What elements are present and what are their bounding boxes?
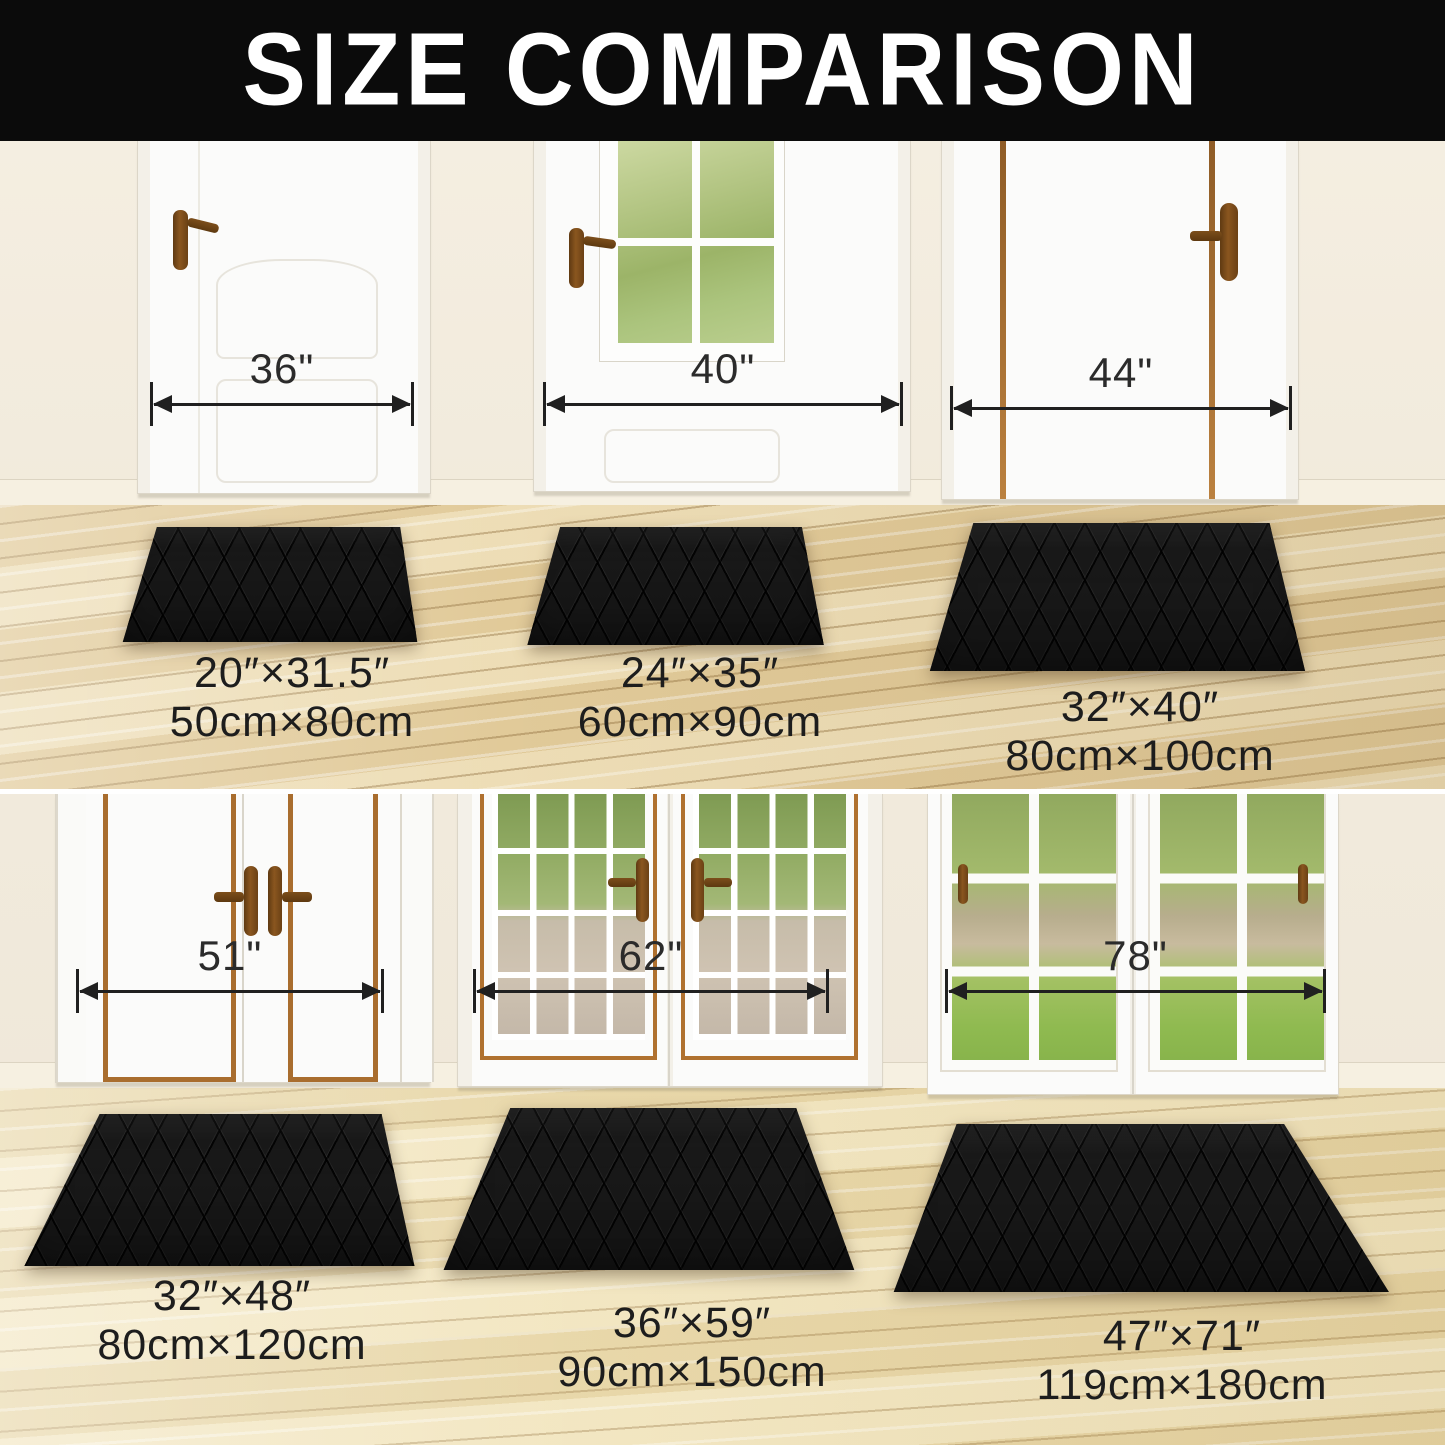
door-handle-lever-icon	[282, 892, 312, 902]
doormat-32x48	[15, 1114, 485, 1266]
arrow-left-icon	[153, 395, 172, 413]
door-handle-icon	[636, 858, 649, 922]
sidelight	[400, 794, 434, 1082]
measure-tick-right	[1289, 386, 1292, 430]
size-inches: 36″×59″	[557, 1299, 826, 1348]
arrow-left-icon	[476, 982, 495, 1000]
size-cm: 90cm×150cm	[557, 1348, 826, 1397]
doormat-36x59	[435, 1108, 865, 1270]
doormat-surface	[115, 527, 425, 642]
doormat-surface	[918, 523, 1313, 671]
width-measure-44: 44"	[950, 349, 1292, 445]
measure-label: 40"	[543, 345, 903, 393]
door-handle-icon	[569, 228, 584, 288]
door-handle-lever-icon	[214, 892, 244, 902]
door-panel	[216, 259, 378, 359]
arrow-left-icon	[948, 982, 967, 1000]
doormat-surface	[15, 1114, 485, 1266]
doormat-32x40	[918, 523, 1313, 671]
mat-size-label: 36″×59″ 90cm×150cm	[557, 1299, 826, 1398]
size-cm: 50cm×80cm	[170, 698, 414, 747]
measure-label: 62"	[473, 932, 829, 980]
width-measure-78: 78"	[945, 932, 1326, 1028]
doormat-24x35	[518, 527, 830, 645]
mat-size-label: 47″×71″ 119cm×180cm	[1036, 1312, 1327, 1411]
arrow-left-icon	[546, 395, 565, 413]
size-inches: 24″×35″	[578, 649, 822, 698]
measure-label: 51"	[76, 932, 384, 980]
top-section: 36" 40" 44"	[0, 141, 1445, 789]
measure-line	[949, 990, 1322, 993]
measure-tick-right	[411, 382, 414, 426]
width-measure-62: 62"	[473, 932, 829, 1028]
door-handle-icon	[173, 210, 188, 270]
doormat-surface	[435, 1108, 865, 1270]
doormat-20x31	[115, 527, 425, 642]
door-handle-icon	[1298, 864, 1308, 904]
title-banner: SIZE COMPARISON	[0, 0, 1445, 141]
arrow-right-icon	[1304, 982, 1323, 1000]
mat-size-label: 32″×48″ 80cm×120cm	[97, 1272, 366, 1371]
door-leaf	[954, 141, 1286, 499]
measure-line	[154, 403, 410, 406]
arrow-right-icon	[881, 395, 900, 413]
measure-tick-right	[381, 969, 384, 1013]
door-handle-icon	[958, 864, 968, 904]
page-title: SIZE COMPARISON	[243, 12, 1203, 130]
size-inches: 32″×48″	[97, 1272, 366, 1321]
arrow-right-icon	[807, 982, 826, 1000]
measure-line	[80, 990, 380, 993]
size-cm: 119cm×180cm	[1036, 1361, 1327, 1410]
window-glass	[610, 141, 774, 351]
measure-line	[954, 407, 1288, 410]
measure-label: 78"	[945, 932, 1326, 980]
door-handle-icon	[1220, 203, 1238, 281]
size-comparison-infographic: SIZE COMPARISON	[0, 0, 1445, 1445]
size-cm: 60cm×90cm	[578, 698, 822, 747]
measure-line	[547, 403, 899, 406]
measure-label: 44"	[950, 349, 1292, 397]
door-handle-lever-icon	[1190, 231, 1222, 241]
measure-line	[477, 990, 825, 993]
measure-tick-right	[1323, 969, 1326, 1013]
mat-size-label: 24″×35″ 60cm×90cm	[578, 649, 822, 748]
measure-tick-right	[826, 969, 829, 1013]
doormat-surface	[878, 1124, 1402, 1292]
door-handle-lever-icon	[704, 878, 732, 887]
door-window	[600, 141, 784, 361]
bottom-section: 51" 62" 78"	[0, 794, 1445, 1445]
arrow-left-icon	[79, 982, 98, 1000]
mat-size-label: 20″×31.5″ 50cm×80cm	[170, 649, 414, 748]
width-measure-36: 36"	[150, 345, 414, 441]
door-44in	[942, 141, 1298, 499]
doormat-surface	[518, 527, 830, 645]
door-handle-icon	[268, 866, 282, 936]
door-handle-icon	[244, 866, 258, 936]
arrow-left-icon	[953, 399, 972, 417]
arrow-right-icon	[1270, 399, 1289, 417]
width-measure-51: 51"	[76, 932, 384, 1028]
doormat-47x71	[878, 1124, 1402, 1292]
door-handle-lever-icon	[608, 878, 636, 887]
size-cm: 80cm×100cm	[1005, 732, 1274, 781]
door-trim	[1000, 141, 1006, 499]
measure-label: 36"	[150, 345, 414, 393]
door-trim	[1209, 141, 1215, 499]
arrow-right-icon	[362, 982, 381, 1000]
width-measure-40: 40"	[543, 345, 903, 441]
size-inches: 20″×31.5″	[170, 649, 414, 698]
size-inches: 32″×40″	[1005, 683, 1274, 732]
arrow-right-icon	[392, 395, 411, 413]
size-inches: 47″×71″	[1036, 1312, 1327, 1361]
mat-size-label: 32″×40″ 80cm×100cm	[1005, 683, 1274, 782]
measure-tick-right	[900, 382, 903, 426]
size-cm: 80cm×120cm	[97, 1321, 366, 1370]
door-handle-icon	[691, 858, 704, 922]
